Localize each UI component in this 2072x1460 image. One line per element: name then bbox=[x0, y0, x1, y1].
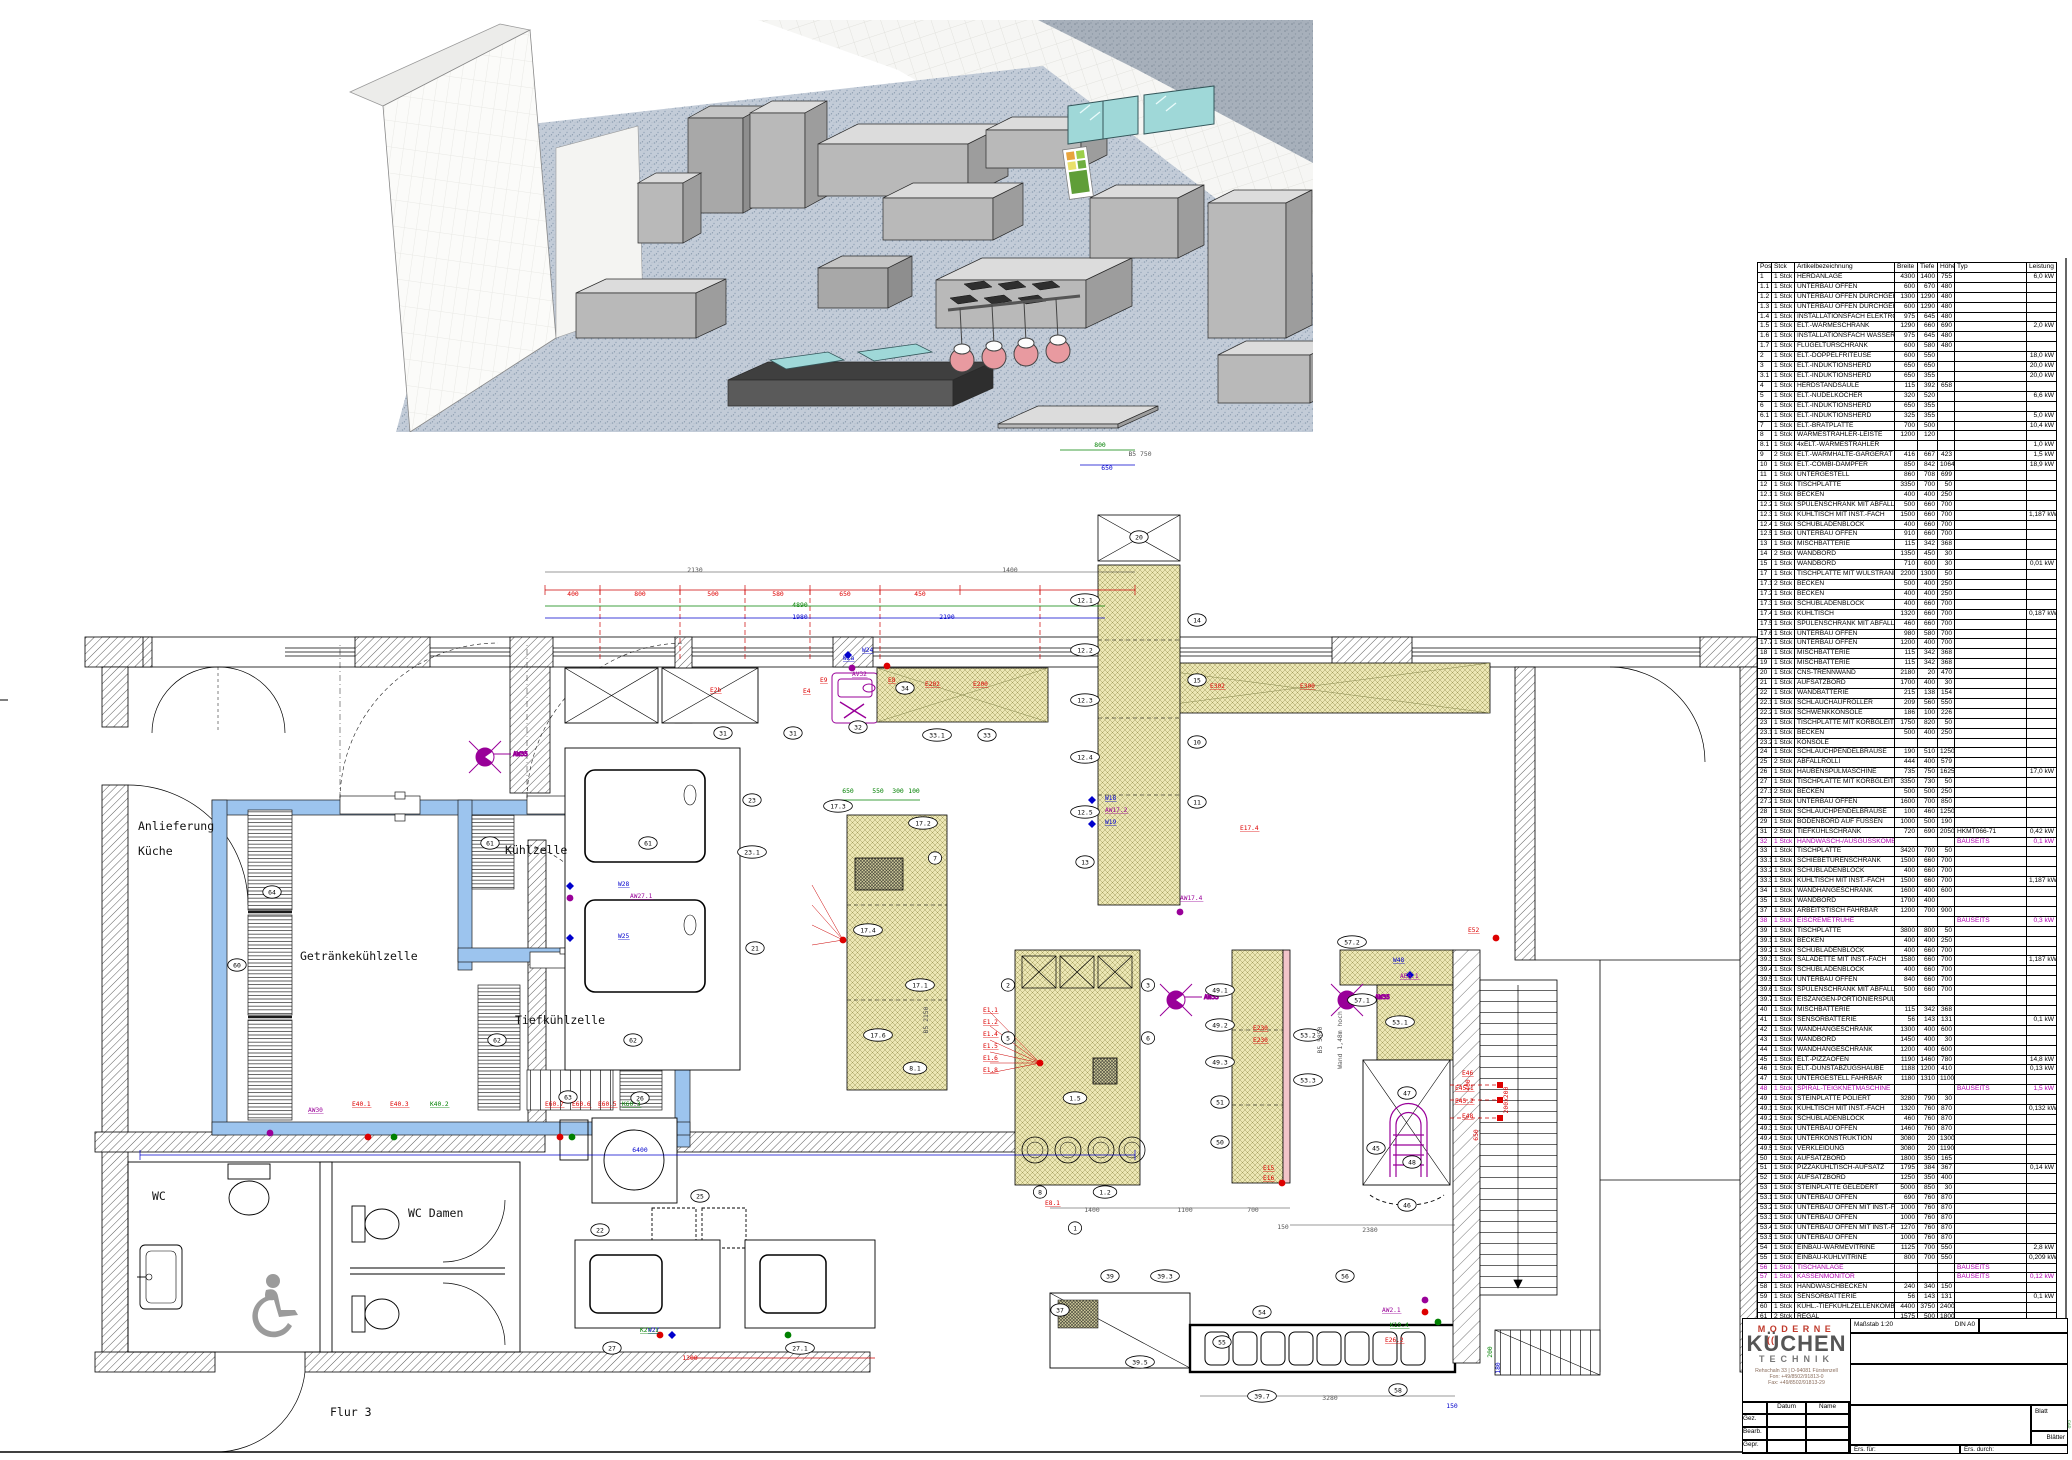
svg-text:12.3: 12.3 bbox=[1077, 696, 1093, 704]
svg-text:E52: E52 bbox=[1468, 927, 1479, 934]
svg-text:AW17.4: AW17.4 bbox=[1180, 895, 1203, 902]
svg-text:AW35: AW35 bbox=[1375, 994, 1390, 1001]
parts-row: 142 StckWANDBORD135045030 bbox=[1758, 550, 2057, 560]
svg-text:62: 62 bbox=[629, 1036, 637, 1044]
svg-text:E9: E9 bbox=[820, 677, 828, 684]
svg-text:E302: E302 bbox=[1210, 683, 1225, 690]
parts-row: 101 StckELT.-COMBI-DÄMPFER850842106418,9… bbox=[1758, 461, 2057, 471]
parts-row: 1.21 StckUNTERBAU OFFEN DURCHGEHEND13001… bbox=[1758, 292, 2057, 302]
parts-row: 471 StckUNTERGESTELL FAHRBAR118013101100 bbox=[1758, 1075, 2057, 1085]
svg-text:23.1: 23.1 bbox=[744, 848, 760, 856]
svg-text:23: 23 bbox=[748, 796, 756, 804]
parts-row: 271 StckTISCHPLATTE MIT KORBGLEITBAHN335… bbox=[1758, 778, 2057, 788]
svg-text:W48: W48 bbox=[1393, 957, 1404, 964]
svg-text:12.2: 12.2 bbox=[1077, 646, 1093, 654]
svg-text:E1.6: E1.6 bbox=[983, 1055, 998, 1062]
parts-row: 39.41 StckSCHUBLADENBLOCK400660700 bbox=[1758, 966, 2057, 976]
svg-text:K27.1: K27.1 bbox=[640, 1327, 659, 1334]
svg-text:150: 150 bbox=[1277, 1223, 1289, 1231]
parts-row: 49.31 StckUNTERBAU OFFEN1460760870 bbox=[1758, 1124, 2057, 1134]
svg-text:27.1: 27.1 bbox=[792, 1344, 808, 1352]
svg-text:K40.2: K40.2 bbox=[430, 1101, 449, 1108]
svg-text:E48: E48 bbox=[1462, 1113, 1473, 1120]
parts-row: 53.31 StckUNTERBAU OFFEN1000760870 bbox=[1758, 1214, 2057, 1224]
svg-text:AW35: AW35 bbox=[513, 751, 528, 758]
svg-text:14: 14 bbox=[1193, 616, 1201, 624]
svg-text:E1.1: E1.1 bbox=[983, 1007, 998, 1014]
svg-text:7: 7 bbox=[933, 854, 937, 862]
svg-text:2130: 2130 bbox=[687, 566, 703, 574]
room-label: Anlieferung bbox=[138, 819, 214, 833]
svg-text:57.2: 57.2 bbox=[1344, 938, 1360, 946]
parts-row: 341 StckWANDHÄNGESCHRANK1600400600 bbox=[1758, 887, 2057, 897]
svg-text:13: 13 bbox=[1081, 858, 1089, 866]
parts-row: 491 StckSTEINPLATTE POLIERT328079030 bbox=[1758, 1095, 2057, 1105]
parts-row: 53.41 StckUNTERBAU OFFEN MIT INST.-FACH1… bbox=[1758, 1223, 2057, 1233]
svg-text:E60.6: E60.6 bbox=[572, 1101, 591, 1108]
parts-row: 211 StckAUFSATZBORD170040030 bbox=[1758, 679, 2057, 689]
svg-text:2: 2 bbox=[1006, 981, 1010, 989]
svg-text:39.3: 39.3 bbox=[1157, 1272, 1173, 1280]
stairs bbox=[1453, 950, 1600, 1375]
room-label: Getränkekühlzelle bbox=[300, 949, 418, 963]
parts-row: 53.51 StckUNTERBAU OFFEN1000760870 bbox=[1758, 1233, 2057, 1243]
parts-row: 39.71 StckEISZANGEN-PORTIONIERSPÜLE bbox=[1758, 996, 2057, 1006]
svg-text:4890: 4890 bbox=[792, 601, 808, 609]
svg-text:61: 61 bbox=[644, 839, 652, 847]
parts-row: 421 StckWANDHÄNGESCHRANK1300400600 bbox=[1758, 1025, 2057, 1035]
svg-text:E200: E200 bbox=[973, 681, 988, 688]
parts-col-header: Typ bbox=[1955, 263, 2027, 273]
svg-text:6: 6 bbox=[1146, 1034, 1150, 1042]
svg-text:E17.4: E17.4 bbox=[1240, 825, 1259, 832]
parts-row: 601 StckKÜHL.-TIEFKÜHLZELLENKOMB.4400375… bbox=[1758, 1303, 2057, 1313]
svg-text:39: 39 bbox=[1106, 1272, 1114, 1280]
svg-text:49.1: 49.1 bbox=[1212, 986, 1228, 994]
drawing-sheet: AW35AW35AW35 3131323433.13312.112.212.31… bbox=[0, 0, 2072, 1460]
svg-text:8: 8 bbox=[1038, 1188, 1042, 1196]
parts-row: 81 StckWÄRMESTRAHLER-LEISTE1200120 bbox=[1758, 431, 2057, 441]
svg-text:46: 46 bbox=[1403, 1201, 1411, 1209]
parts-col-header: Stck bbox=[1772, 263, 1795, 273]
parts-row: 371 StckARBEITSTISCH FAHRBAR1200700900 bbox=[1758, 906, 2057, 916]
parts-row: 321 StckHANDWASCH-/AUSGUSSKOMBINATIONBAU… bbox=[1758, 837, 2057, 847]
logo-fax: Fax: +49/8502/91813-29 bbox=[1743, 1380, 1850, 1386]
handwash-unit bbox=[832, 673, 878, 723]
render-3d-view bbox=[338, 8, 1313, 432]
svg-text:200: 200 bbox=[1486, 1346, 1494, 1358]
parts-row: 291 StckBODENBORD AUF FÜSSEN1000500190 bbox=[1758, 817, 2057, 827]
svg-text:27: 27 bbox=[608, 1344, 616, 1352]
svg-text:62: 62 bbox=[493, 1036, 501, 1044]
svg-text:400: 400 bbox=[1464, 1079, 1472, 1091]
parts-row: 71 StckELT.-BRATPLATTE70050010,4 kW bbox=[1758, 421, 2057, 431]
parts-row: 61 StckELT.-INDUKTIONSHERD650355 bbox=[1758, 401, 2057, 411]
parts-row: 181 StckMISCHBATTERIE115342368 bbox=[1758, 649, 2057, 659]
parts-row: 171 StckTISCHPLATTE MIT WULSTRAND2200130… bbox=[1758, 570, 2057, 580]
svg-text:53.2: 53.2 bbox=[1300, 1031, 1316, 1039]
svg-text:B5 2150: B5 2150 bbox=[922, 1006, 930, 1033]
svg-text:E16: E16 bbox=[1263, 1175, 1274, 1182]
parts-row: 201 StckCNS-TRENNWAND218020470 bbox=[1758, 669, 2057, 679]
svg-text:E1.4: E1.4 bbox=[983, 1031, 998, 1038]
svg-text:5: 5 bbox=[1006, 1034, 1010, 1042]
svg-text:W18: W18 bbox=[1105, 795, 1116, 802]
parts-row: 27.12 StckBECKEN500500250 bbox=[1758, 788, 2057, 798]
scale-label: Maßstab 1:20 bbox=[1854, 1321, 1893, 1328]
parts-row: 561 StckTISCHANLAGEBAUSEITS bbox=[1758, 1263, 2057, 1273]
svg-text:E1.5: E1.5 bbox=[983, 1043, 998, 1050]
svg-text:17.1: 17.1 bbox=[912, 981, 928, 989]
svg-text:3280: 3280 bbox=[1322, 1394, 1338, 1402]
svg-text:800: 800 bbox=[634, 590, 646, 598]
svg-text:100: 100 bbox=[908, 787, 920, 795]
svg-text:61: 61 bbox=[486, 839, 494, 847]
svg-text:31: 31 bbox=[789, 729, 797, 737]
parts-row: 39.51 StckUNTERBAU OFFEN840660700 bbox=[1758, 976, 2057, 986]
parts-row: 39.31 StckSALADETTE MIT INST.-FACH158066… bbox=[1758, 956, 2057, 966]
parts-row: 17.21 StckBECKEN400400250 bbox=[1758, 589, 2057, 599]
parts-row: 12.41 StckSCHUBLADENBLOCK400660700 bbox=[1758, 520, 2057, 530]
svg-text:650: 650 bbox=[842, 787, 854, 795]
svg-text:650: 650 bbox=[1101, 464, 1113, 472]
svg-text:E4: E4 bbox=[803, 688, 811, 695]
svg-text:1.2: 1.2 bbox=[1099, 1188, 1111, 1196]
svg-text:E1.8: E1.8 bbox=[983, 1067, 998, 1074]
parts-row: 481 StckSPIRAL-TEIGKNETMASCHINEBAUSEITS1… bbox=[1758, 1085, 2057, 1095]
svg-text:W2a: W2a bbox=[843, 655, 854, 662]
svg-text:AW27.1: AW27.1 bbox=[630, 893, 653, 900]
ers-fuer-label: Ers. für: bbox=[1854, 1446, 1876, 1453]
svg-text:3: 3 bbox=[1146, 981, 1150, 989]
parts-row: 381 StckEISCREMETRUHEBAUSEITS0,3 kW bbox=[1758, 916, 2057, 926]
svg-text:55: 55 bbox=[1218, 1338, 1226, 1346]
svg-text:34: 34 bbox=[901, 684, 909, 692]
svg-text:E230: E230 bbox=[1253, 1025, 1268, 1032]
title-block: MODERNE ((KÜCHEN TECHNIK Rehschaln 33 | … bbox=[1742, 1318, 2068, 1454]
wc-block bbox=[128, 1162, 520, 1352]
flame-icon: (( bbox=[1767, 1330, 1775, 1350]
parts-row: 11 StckHERDANLAGE430014007556,0 kW bbox=[1758, 272, 2057, 282]
parts-row: 17.61 StckUNTERBAU OFFEN980580700 bbox=[1758, 629, 2057, 639]
svg-text:E230: E230 bbox=[1253, 1037, 1268, 1044]
parts-row: 22.11 StckSCHLAUCHAUFROLLER209560550 bbox=[1758, 698, 2057, 708]
svg-text:E300: E300 bbox=[1300, 683, 1315, 690]
parts-row: 49.51 StckVERKLEIDUNG3080201190 bbox=[1758, 1144, 2057, 1154]
col-datum: Datum bbox=[1767, 1402, 1806, 1414]
svg-text:650: 650 bbox=[839, 590, 851, 598]
parts-row: 151 StckWANDBORD710600300,01 kW bbox=[1758, 560, 2057, 570]
svg-text:39.5: 39.5 bbox=[1132, 1358, 1148, 1366]
svg-text:180: 180 bbox=[1494, 1362, 1502, 1374]
svg-text:E8.1: E8.1 bbox=[1045, 1200, 1060, 1207]
parts-row: 23.21 StckKONSOLE bbox=[1758, 738, 2057, 748]
svg-text:W28: W28 bbox=[618, 881, 629, 888]
svg-text:W24: W24 bbox=[862, 647, 873, 654]
svg-text:8.1: 8.1 bbox=[909, 1064, 921, 1072]
svg-text:K60.3: K60.3 bbox=[622, 1101, 641, 1108]
svg-text:AE6.1: AE6.1 bbox=[1400, 973, 1419, 980]
svg-text:580: 580 bbox=[772, 590, 784, 598]
svg-text:1980: 1980 bbox=[792, 613, 808, 621]
svg-text:33: 33 bbox=[983, 731, 991, 739]
parts-row: 17.71 StckUNTERBAU OFFEN1200400700 bbox=[1758, 639, 2057, 649]
row-bearb: Bearb. bbox=[1743, 1427, 1767, 1440]
svg-text:22: 22 bbox=[596, 1226, 604, 1234]
parts-row: 6.11 StckELT.-INDUKTIONSHERD3253555,0 kW bbox=[1758, 411, 2057, 421]
parts-row: 31 StckELT.-INDUKTIONSHERD65065020,0 kW bbox=[1758, 362, 2057, 372]
svg-text:AV32: AV32 bbox=[852, 671, 867, 678]
parts-row: 33.11 StckSCHIEBETÜRENSCHRANK1500660700 bbox=[1758, 857, 2057, 867]
parts-row: 17.51 StckSPÜLENSCHRANK MIT ABFALLKIPPER… bbox=[1758, 619, 2057, 629]
svg-text:20: 20 bbox=[1135, 533, 1143, 541]
parts-row: 591 StckSENSORBATTERIE561431310,1 kW bbox=[1758, 1293, 2057, 1303]
parts-col-header: Pos. bbox=[1758, 263, 1772, 273]
svg-text:E40.1: E40.1 bbox=[352, 1101, 371, 1108]
svg-text:1400: 1400 bbox=[1084, 1206, 1100, 1214]
svg-text:21: 21 bbox=[751, 944, 759, 952]
svg-text:Wand 1,48m hoch: Wand 1,48m hoch bbox=[1336, 1011, 1344, 1069]
parts-row: 252 StckABFALLROLLI444400579 bbox=[1758, 758, 2057, 768]
room-label: Tiefkühlzelle bbox=[515, 1013, 605, 1027]
freezer-cabinets bbox=[565, 668, 758, 723]
parts-row: 331 StckTISCHPLATTE342070050 bbox=[1758, 847, 2057, 857]
svg-text:32: 32 bbox=[854, 723, 862, 731]
parts-row: 21 StckELT.-DOPPELFRITEUSE60055018,0 kW bbox=[1758, 352, 2057, 362]
svg-text:11: 11 bbox=[1193, 798, 1201, 806]
svg-text:E26.2: E26.2 bbox=[1385, 1337, 1404, 1344]
svg-text:800: 800 bbox=[1094, 441, 1106, 449]
parts-row: 8.11 Stck4xELT.-WÄRMESTRAHLER1,0 kW bbox=[1758, 441, 2057, 451]
parts-row: 33.21 StckSCHUBLADENBLOCK400660700 bbox=[1758, 867, 2057, 877]
parts-row: 111 StckUNTERGESTELL860708699 bbox=[1758, 471, 2057, 481]
svg-text:17.6: 17.6 bbox=[870, 1031, 886, 1039]
svg-text:10: 10 bbox=[1193, 738, 1201, 746]
svg-text:E60.7: E60.7 bbox=[545, 1101, 564, 1108]
svg-text:650: 650 bbox=[1472, 1129, 1480, 1141]
parts-row: 23.11 StckBECKEN500400250 bbox=[1758, 728, 2057, 738]
parts-row: 431 StckWANDBORD145040030 bbox=[1758, 1035, 2057, 1045]
svg-text:500: 500 bbox=[707, 590, 719, 598]
svg-text:E60.5: E60.5 bbox=[598, 1101, 617, 1108]
svg-text:700: 700 bbox=[1247, 1206, 1259, 1214]
parts-row: 51 StckELT.-NUDELKOCHER3205206,6 kW bbox=[1758, 391, 2057, 401]
parts-row: 541 StckEINBAU-WÄRMEVITRINE11257005502,8… bbox=[1758, 1243, 2057, 1253]
parts-row: 12.31 StckKÜHLTISCH MIT INST.-FACH150066… bbox=[1758, 510, 2057, 520]
parts-row: 551 StckEINBAU-KÜHLVITRINE8007005500,209… bbox=[1758, 1253, 2057, 1263]
svg-text:W25: W25 bbox=[618, 933, 629, 940]
parts-row: 451 StckELT.-PIZZAOFEN1190146078014,8 kW bbox=[1758, 1055, 2057, 1065]
svg-text:E1.2: E1.2 bbox=[983, 1019, 998, 1026]
format-label: DIN A0 bbox=[1955, 1321, 1975, 1328]
parts-row: 49.11 StckKÜHLTISCH MIT INST.-FACH132076… bbox=[1758, 1105, 2057, 1115]
wheelchair-icon bbox=[252, 1274, 298, 1337]
svg-text:17.3: 17.3 bbox=[830, 802, 846, 810]
blatt-label: Blatt bbox=[2035, 1408, 2048, 1415]
svg-text:1.5: 1.5 bbox=[1069, 1094, 1081, 1102]
parts-row: 391 StckTISCHPLATTE380080050 bbox=[1758, 926, 2057, 936]
svg-text:1100: 1100 bbox=[1177, 1206, 1193, 1214]
parts-row: 27.21 StckUNTERBAU OFFEN1600700850 bbox=[1758, 797, 2057, 807]
parts-row: 22.21 StckSCHWENKKONSOLE186100226 bbox=[1758, 708, 2057, 718]
svg-text:400: 400 bbox=[567, 590, 579, 598]
parts-row: 53.21 StckUNTERBAU OFFEN MIT INST.-FACH1… bbox=[1758, 1204, 2057, 1214]
work-tables bbox=[560, 748, 1455, 1372]
svg-text:60: 60 bbox=[233, 961, 241, 969]
svg-text:33.1: 33.1 bbox=[929, 731, 945, 739]
parts-row: 121 StckTISCHPLATTE335070050 bbox=[1758, 480, 2057, 490]
parts-row: 531 StckSTEINPLATTE GELEDERT500085030 bbox=[1758, 1184, 2057, 1194]
parts-row: 33.31 StckKÜHLTISCH MIT INST.-FACH150066… bbox=[1758, 877, 2057, 887]
parts-col-header: Höhe bbox=[1938, 263, 1955, 273]
parts-row: 191 StckMISCHBATTERIE115342368 bbox=[1758, 659, 2057, 669]
parts-row: 49.41 StckUNTERKONSTRUKTION3080201300 bbox=[1758, 1134, 2057, 1144]
svg-text:B5 5850: B5 5850 bbox=[1316, 1026, 1324, 1053]
svg-text:12.4: 12.4 bbox=[1077, 753, 1093, 761]
parts-row: 1.31 StckUNTERBAU OFFEN DURCHGEHEND60012… bbox=[1758, 302, 2057, 312]
svg-text:47: 47 bbox=[1403, 1089, 1411, 1097]
svg-text:51: 51 bbox=[1216, 1098, 1224, 1106]
logo-line2: ((KÜCHEN bbox=[1743, 1334, 1850, 1354]
parts-row: 281 StckSCHLAUCHPENDELBRAUSE1004601250 bbox=[1758, 807, 2057, 817]
svg-text:64: 64 bbox=[268, 888, 276, 896]
svg-text:49.2: 49.2 bbox=[1212, 1021, 1228, 1029]
parts-row: 39.11 StckBECKEN400400250 bbox=[1758, 936, 2057, 946]
room-label: WC bbox=[152, 1189, 166, 1203]
parts-row: 1.41 StckINSTALLATIONSFACH ELEKTRO975645… bbox=[1758, 312, 2057, 322]
parts-row: 12.11 StckBECKEN400400250 bbox=[1758, 490, 2057, 500]
svg-text:25: 25 bbox=[696, 1192, 704, 1200]
svg-text:31: 31 bbox=[719, 729, 727, 737]
svg-text:1400: 1400 bbox=[1002, 566, 1018, 574]
parts-row: 1.61 StckINSTALLATIONSFACH WASSER9756454… bbox=[1758, 332, 2057, 342]
svg-text:1300: 1300 bbox=[682, 1354, 698, 1362]
parts-row: 39.61 StckSPÜLENSCHRANK MIT ABFALLKIPPER… bbox=[1758, 986, 2057, 996]
svg-text:17.4: 17.4 bbox=[860, 926, 876, 934]
svg-text:50: 50 bbox=[1216, 1138, 1224, 1146]
parts-row: 12.21 StckSPÜLENSCHRANK MIT ABFALLKIPPER… bbox=[1758, 500, 2057, 510]
room-label: Kühlzelle bbox=[505, 843, 567, 857]
parts-row: 441 StckWANDHÄNGESCHRANK1200400600 bbox=[1758, 1045, 2057, 1055]
svg-text:E2b: E2b bbox=[710, 687, 721, 694]
parts-table: Pos.StckArtikelbezeichnungBreiteTiefeHöh… bbox=[1757, 262, 2057, 1353]
parts-row: 92 StckELT.-WARMHALTE-GARGERÄT4166674231… bbox=[1758, 451, 2057, 461]
svg-text:17.2: 17.2 bbox=[915, 819, 931, 827]
parts-col-header: Breite bbox=[1895, 263, 1918, 273]
svg-text:550: 550 bbox=[872, 787, 884, 795]
svg-text:6400: 6400 bbox=[632, 1146, 648, 1154]
svg-text:2380: 2380 bbox=[1362, 1226, 1378, 1234]
company-logo: MODERNE ((KÜCHEN TECHNIK Rehschaln 33 | … bbox=[1743, 1319, 1850, 1401]
parts-row: 1.11 StckUNTERBAU OFFEN600670480 bbox=[1758, 282, 2057, 292]
parts-row: 17.31 StckSCHUBLADENBLOCK400660700 bbox=[1758, 599, 2057, 609]
svg-text:45: 45 bbox=[1372, 1144, 1380, 1152]
svg-text:15: 15 bbox=[1193, 676, 1201, 684]
svg-text:48: 48 bbox=[1408, 1158, 1416, 1166]
svg-text:AW17.2: AW17.2 bbox=[1105, 807, 1128, 814]
parts-row: 261 StckHAUBENSPÜLMASCHINE735750162517,0… bbox=[1758, 768, 2057, 778]
parts-table-header: Pos.StckArtikelbezeichnungBreiteTiefeHöh… bbox=[1758, 263, 2057, 273]
svg-text:200x200: 200x200 bbox=[1502, 1086, 1510, 1113]
svg-text:300: 300 bbox=[892, 787, 904, 795]
parts-row: 17.41 StckKÜHLTISCH13206607000,187 kW bbox=[1758, 609, 2057, 619]
parts-row: 411 StckSENSORBATTERIE561431310,1 kW bbox=[1758, 1015, 2057, 1025]
svg-text:56: 56 bbox=[1341, 1272, 1349, 1280]
svg-text:E202: E202 bbox=[925, 681, 940, 688]
svg-text:E15: E15 bbox=[1263, 1165, 1274, 1172]
blaetter-label: Blätter bbox=[2047, 1434, 2065, 1441]
parts-row: 49.21 StckSCHUBLADENBLOCK460760870 bbox=[1758, 1114, 2057, 1124]
svg-text:E45.2: E45.2 bbox=[1455, 1098, 1474, 1105]
svg-text:57.1: 57.1 bbox=[1354, 996, 1370, 1004]
parts-col-header: Artikelbezeichnung bbox=[1795, 263, 1895, 273]
parts-row: 501 StckAUFSATZBORD1800350165 bbox=[1758, 1154, 2057, 1164]
svg-text:53.1: 53.1 bbox=[1392, 1018, 1408, 1026]
ers-durch-label: Ers. durch: bbox=[1964, 1446, 1994, 1453]
svg-text:12.1: 12.1 bbox=[1077, 596, 1093, 604]
parts-row: 401 StckMISCHBATTERIE115342368 bbox=[1758, 1005, 2057, 1015]
parts-row: 131 StckMISCHBATTERIE115342368 bbox=[1758, 540, 2057, 550]
svg-text:53.3: 53.3 bbox=[1300, 1076, 1316, 1084]
parts-row: 521 StckAUFSATZBORD1250350400 bbox=[1758, 1174, 2057, 1184]
parts-col-header: Tiefe bbox=[1918, 263, 1938, 273]
svg-text:K19.4: K19.4 bbox=[1390, 1322, 1409, 1329]
parts-row: 461 StckELT.-DUNSTABZUGSHAUBE11881200410… bbox=[1758, 1065, 2057, 1075]
parts-row: 312 StckTIEFKÜHLSCHRANK7206902050HKMT066… bbox=[1758, 827, 2057, 837]
parts-row: 221 StckWANDBATTERIE215138154 bbox=[1758, 688, 2057, 698]
parts-row: 241 StckSCHLAUCHPENDELBRAUSE1905101250 bbox=[1758, 748, 2057, 758]
svg-text:E8: E8 bbox=[888, 677, 896, 684]
parts-row: 581 StckHANDWASCHBECKEN240340150 bbox=[1758, 1283, 2057, 1293]
svg-text:54: 54 bbox=[1258, 1308, 1266, 1316]
svg-text:B5 750: B5 750 bbox=[1128, 450, 1151, 458]
parts-row: 351 StckWANDBORD1700400 bbox=[1758, 897, 2057, 907]
row-gepr: Gepr. bbox=[1743, 1440, 1767, 1453]
parts-row: 12.51 StckUNTERBAU OFFEN910660700 bbox=[1758, 530, 2057, 540]
svg-text:49.3: 49.3 bbox=[1212, 1058, 1228, 1066]
svg-text:450: 450 bbox=[914, 590, 926, 598]
parts-row: 1.71 StckFLÜGELTÜRSCHRANK600580480 bbox=[1758, 342, 2057, 352]
parts-row: 571 StckKASSENMONITORBAUSEITS0,12 kW bbox=[1758, 1273, 2057, 1283]
parts-row: 1.51 StckELT.-WÄRMESCHRANK12906606902,0 … bbox=[1758, 322, 2057, 332]
svg-text:AW30: AW30 bbox=[308, 1107, 323, 1114]
parts-row: 41 StckHERDSTANDSÄULE115392658 bbox=[1758, 381, 2057, 391]
svg-text:12.5: 12.5 bbox=[1077, 808, 1093, 816]
parts-row: 3.11 StckELT.-INDUKTIONSHERD65035520,0 k… bbox=[1758, 371, 2057, 381]
svg-text:37: 37 bbox=[1056, 1306, 1064, 1314]
svg-text:E46: E46 bbox=[1462, 1070, 1473, 1077]
room-label: Flur 3 bbox=[330, 1405, 372, 1419]
plot-stamp: CAD bbox=[2066, 1420, 2072, 1452]
col-name: Name bbox=[1806, 1402, 1849, 1414]
svg-text:1: 1 bbox=[1073, 1224, 1077, 1232]
svg-text:39.7: 39.7 bbox=[1254, 1392, 1270, 1400]
svg-text:W19: W19 bbox=[1105, 819, 1116, 826]
svg-text:2190: 2190 bbox=[939, 613, 955, 621]
parts-col-header: Leistung bbox=[2027, 263, 2057, 273]
svg-text:150: 150 bbox=[1446, 1402, 1458, 1410]
room-label: Küche bbox=[138, 844, 173, 858]
parts-row: 53.11 StckUNTERBAU OFFEN690760870 bbox=[1758, 1194, 2057, 1204]
parts-row: 231 StckTISCHPLATTE MIT KORBGLEITBAHN175… bbox=[1758, 718, 2057, 728]
svg-text:63: 63 bbox=[564, 1093, 572, 1101]
parts-row: 511 StckPIZZAKÜHLTISCH-AUFSATZ1795384367… bbox=[1758, 1164, 2057, 1174]
svg-text:AW2.1: AW2.1 bbox=[1382, 1307, 1401, 1314]
svg-text:58: 58 bbox=[1394, 1386, 1402, 1394]
room-label: WC Damen bbox=[408, 1206, 463, 1220]
row-gez: Gez. bbox=[1743, 1414, 1767, 1427]
parts-row: 17.12 StckBECKEN500400250 bbox=[1758, 580, 2057, 590]
